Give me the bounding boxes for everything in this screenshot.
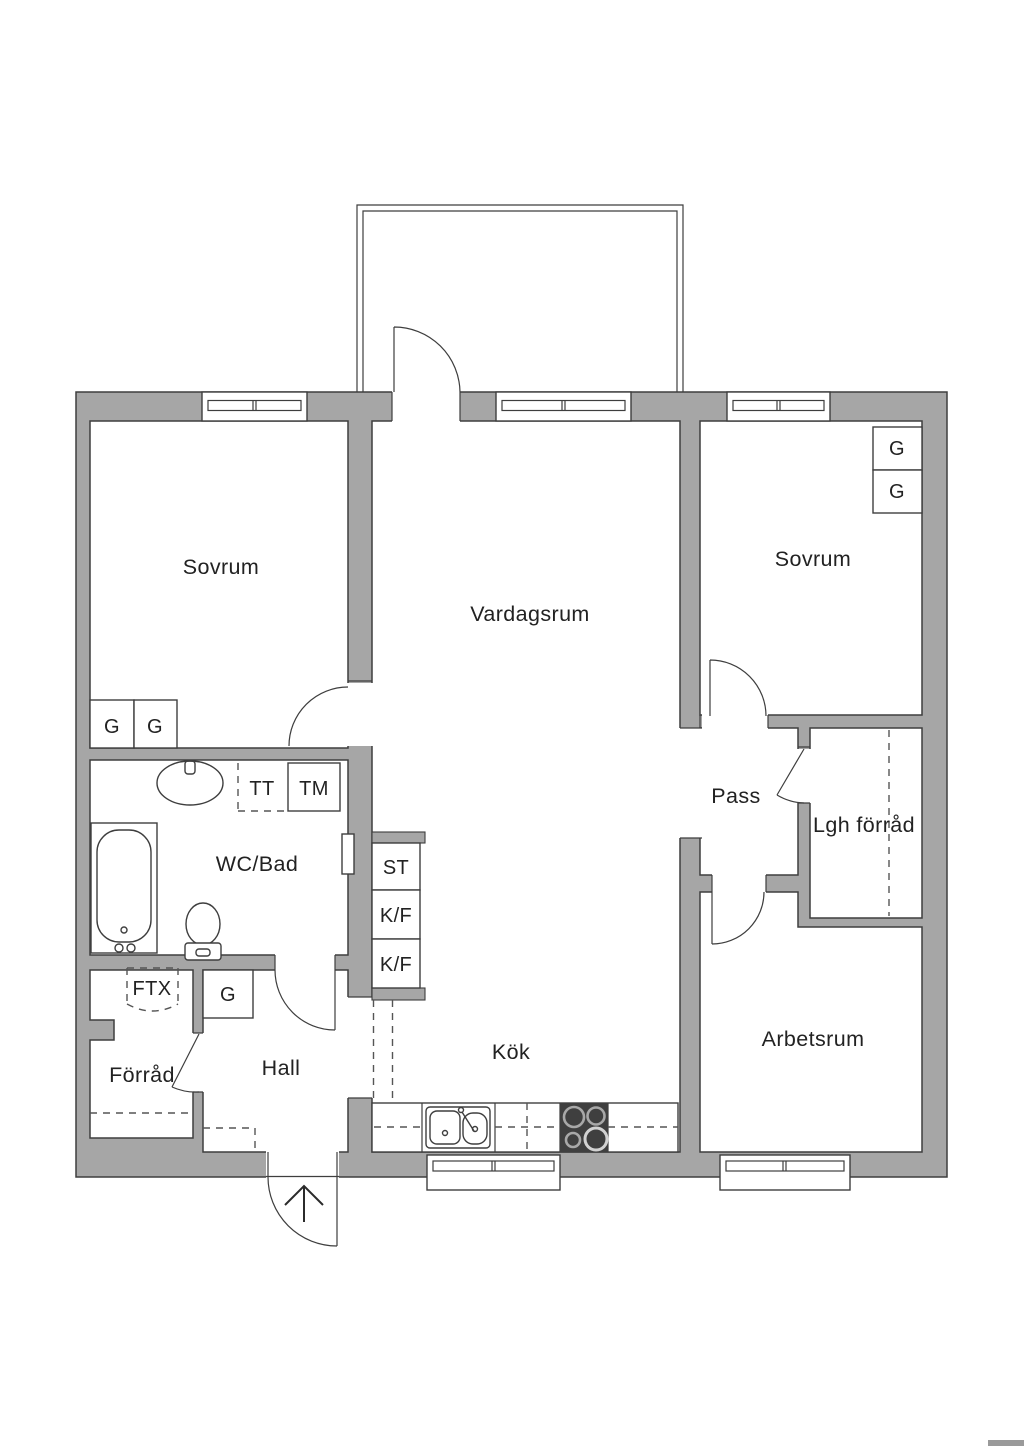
- room-label-sovrum-right: Sovrum: [775, 547, 851, 571]
- window-vardagsrum: [496, 392, 631, 421]
- closet-label-g: G: [889, 438, 905, 460]
- door-arc-balcony: [394, 327, 460, 392]
- entrance-arrow-icon: [285, 1186, 323, 1222]
- room-label-kok: Kök: [492, 1040, 530, 1064]
- floor-plan-page: Sovrum Vardagsrum Sovrum WC/Bad Pass Lgh…: [0, 0, 1024, 1448]
- closet-label-g: G: [220, 984, 236, 1006]
- room-label-forrad: Förråd: [109, 1063, 175, 1087]
- closet-label-st: ST: [383, 857, 409, 879]
- room-arbetsrum: [700, 892, 922, 1152]
- corner-watermark: [988, 1440, 1024, 1446]
- window-kok: [427, 1155, 560, 1190]
- floor-plan-drawing: Sovrum Vardagsrum Sovrum WC/Bad Pass Lgh…: [0, 0, 1024, 1448]
- closet-label-tt: TT: [249, 778, 274, 800]
- balcony-outline: [357, 205, 683, 392]
- room-sovrum-left: [90, 421, 348, 748]
- room-label-hall: Hall: [262, 1056, 301, 1080]
- room-label-vardagsrum: Vardagsrum: [470, 602, 590, 626]
- room-label-arbetsrum: Arbetsrum: [762, 1027, 865, 1051]
- stove-icon: [560, 1103, 608, 1152]
- closet-label-g: G: [889, 481, 905, 503]
- room-label-sovrum-left: Sovrum: [183, 555, 259, 579]
- cabinet-cap: [372, 988, 425, 1000]
- wall-niche: [342, 834, 354, 874]
- window-arbetsrum: [720, 1155, 850, 1190]
- room-label-pass: Pass: [711, 784, 760, 808]
- closet-label-ftx: FTX: [133, 978, 172, 1000]
- room-label-lgh-forrad: Lgh förråd: [813, 813, 915, 837]
- closet-label-kf: K/F: [380, 954, 412, 976]
- window-sovrum-right: [727, 392, 830, 421]
- window-sovrum-left: [202, 392, 307, 421]
- closet-label-g: G: [104, 716, 120, 738]
- closet-label-tm: TM: [299, 778, 329, 800]
- closet-label-g: G: [147, 716, 163, 738]
- cabinet-cap: [372, 832, 425, 843]
- room-label-wc-bad: WC/Bad: [216, 852, 298, 876]
- closet-label-kf: K/F: [380, 905, 412, 927]
